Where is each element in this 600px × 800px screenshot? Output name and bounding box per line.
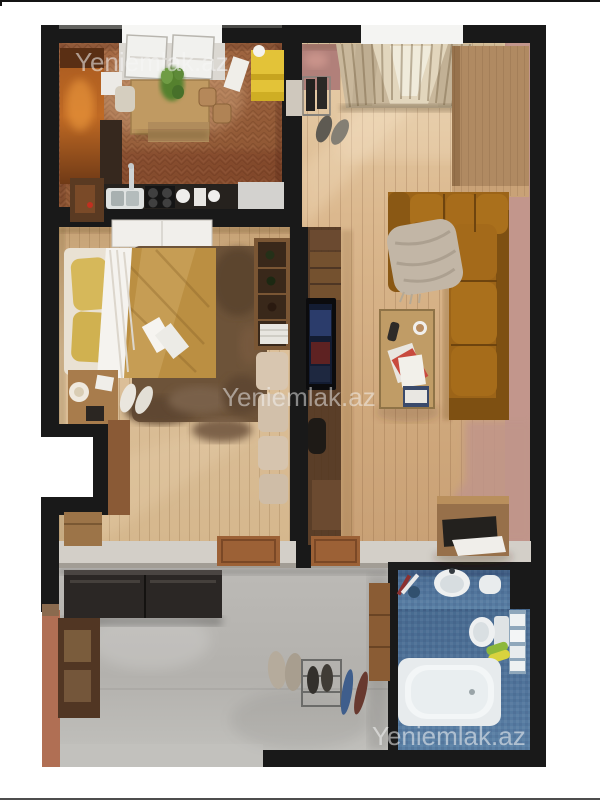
svg-text:Yeniemlak.az: Yeniemlak.az (75, 47, 229, 77)
svg-text:Yeniemlak.az: Yeniemlak.az (222, 382, 376, 412)
svg-text:Yeniemlak.az: Yeniemlak.az (372, 721, 526, 751)
